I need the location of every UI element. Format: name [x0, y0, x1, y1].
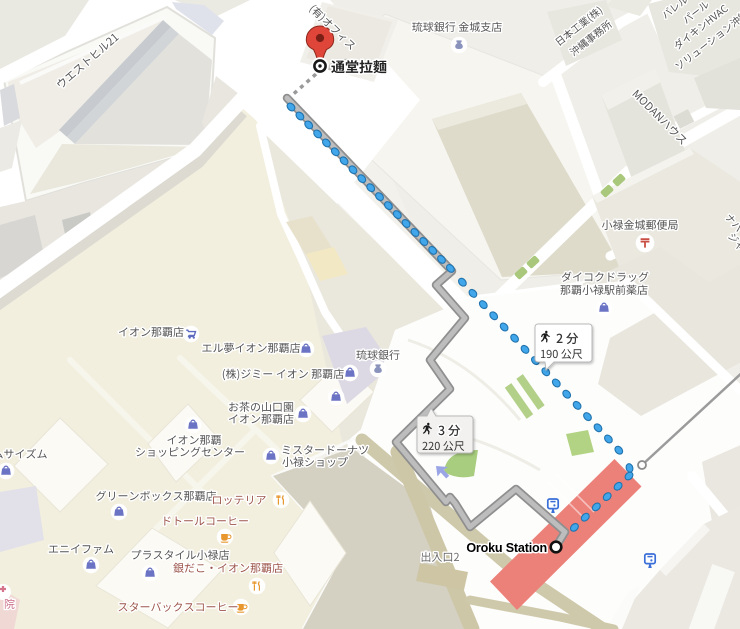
svg-text:Oroku Station: Oroku Station [466, 541, 547, 555]
